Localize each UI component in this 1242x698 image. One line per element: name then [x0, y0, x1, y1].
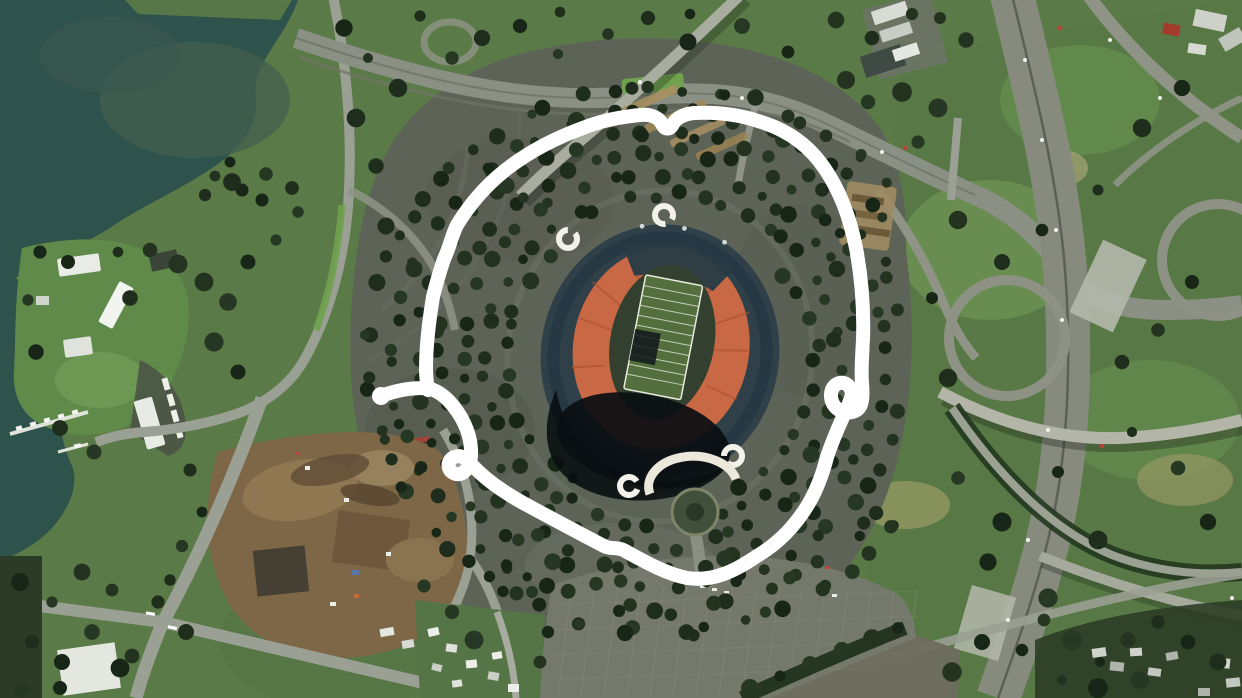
- garden-center: [686, 503, 704, 521]
- lawn-patch: [55, 352, 145, 408]
- sw-neighborhood: [415, 600, 545, 698]
- building-roof: [36, 296, 49, 305]
- excavation-pit: [253, 545, 310, 596]
- satellite-map-canvas[interactable]: [0, 0, 1242, 698]
- neighborhood-green: [415, 600, 545, 698]
- murky-water: [40, 17, 180, 93]
- dry-grass-patch: [1137, 454, 1233, 506]
